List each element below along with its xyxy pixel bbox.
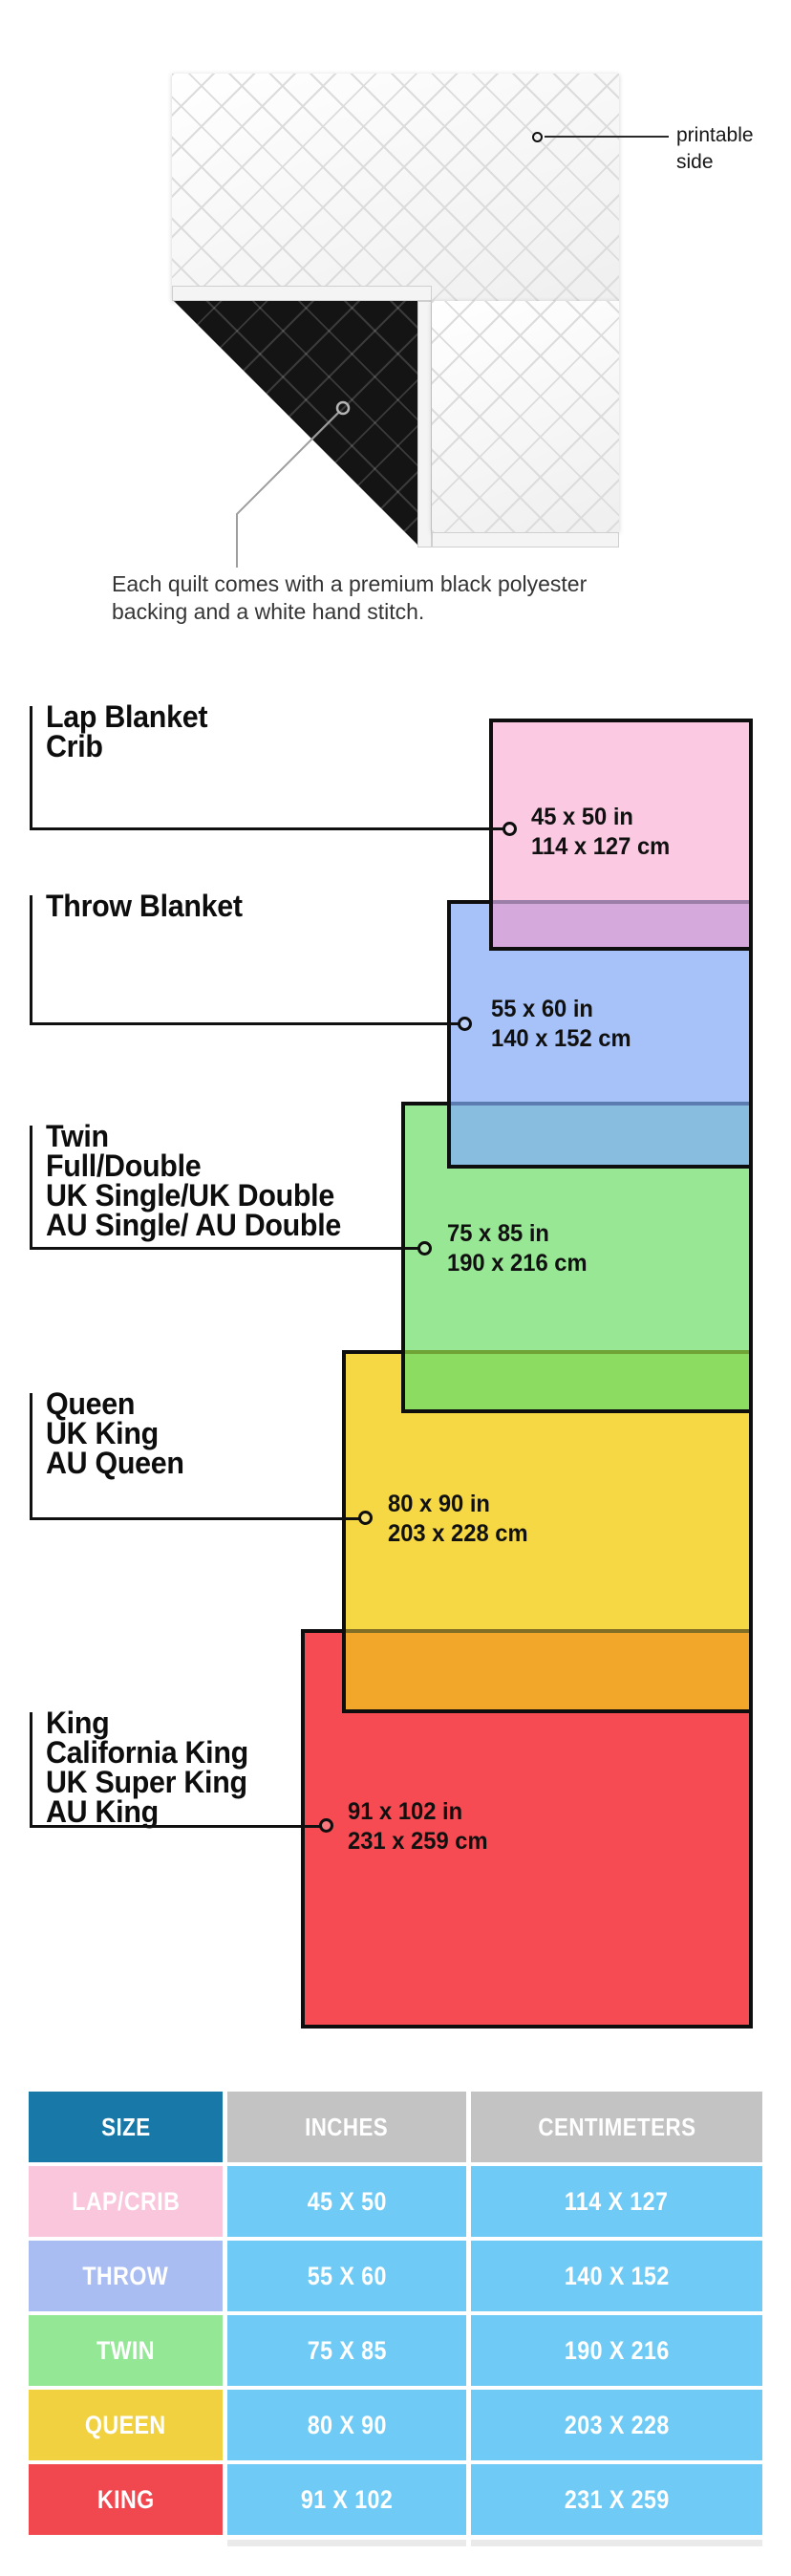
table-shadow-inches — [227, 2540, 466, 2546]
table-row-king-inches: 91 X 102 — [227, 2464, 466, 2535]
leader-hline-throw — [30, 1022, 459, 1025]
leader-vline-throw — [30, 895, 32, 1022]
size-table: SIZE INCHES CENTIMETERS LAP/CRIB 45 X 50… — [29, 2092, 762, 2535]
table-row-king-label: KING — [29, 2464, 223, 2535]
leader-dot-twin-icon — [417, 1241, 432, 1256]
leader-hline-king — [30, 1825, 320, 1828]
table-row-twin-label: TWIN — [29, 2315, 223, 2386]
table-row-throw-cm: 140 X 152 — [471, 2241, 762, 2311]
dimension-label-king: 91 x 102 in 231 x 259 cm — [348, 1797, 495, 1857]
overlap-band-twin-queen — [405, 1350, 749, 1409]
table-row-lap-inches: 45 X 50 — [227, 2166, 466, 2237]
table-row-twin-inches: 75 X 85 — [227, 2315, 466, 2386]
table-row-throw-inches: 55 X 60 — [227, 2241, 466, 2311]
group-label-queen: Queen UK King AU Queen — [46, 1389, 191, 1478]
backing-leader-line — [0, 0, 791, 669]
table-row-queen-cm: 203 X 228 — [471, 2390, 762, 2460]
leader-dot-throw-icon — [458, 1017, 472, 1031]
leader-dot-king-icon — [319, 1818, 333, 1833]
table-row-queen-label: QUEEN — [29, 2390, 223, 2460]
table-shadow-centimeters — [471, 2540, 762, 2546]
dimension-label-queen: 80 x 90 in 203 x 228 cm — [388, 1490, 535, 1549]
leader-vline-lap — [30, 706, 32, 830]
table-row-queen-inches: 80 X 90 — [227, 2390, 466, 2460]
table-row-twin-cm: 190 X 216 — [471, 2315, 762, 2386]
backing-dot-icon — [337, 402, 349, 414]
leader-vline-king — [30, 1712, 32, 1825]
overlap-band-queen-king — [346, 1629, 749, 1709]
leader-hline-queen — [30, 1517, 359, 1520]
dimension-label-throw: 55 x 60 in 140 x 152 cm — [491, 995, 638, 1054]
dimension-label-twin: 75 x 85 in 190 x 216 cm — [447, 1219, 594, 1278]
overlap-band-throw-twin — [451, 1102, 749, 1165]
table-header-inches: INCHES — [227, 2092, 466, 2162]
overlap-band-lap-throw — [493, 900, 749, 947]
dimension-label-lap: 45 x 50 in 114 x 127 cm — [531, 803, 677, 862]
leader-dot-queen-icon — [358, 1511, 373, 1525]
group-label-twin: Twin Full/Double UK Single/UK Double AU … — [46, 1122, 356, 1240]
table-row-king-cm: 231 X 259 — [471, 2464, 762, 2535]
group-label-lap-crib: Lap Blanket Crib — [46, 702, 216, 762]
leader-hline-twin — [30, 1247, 418, 1250]
table-row-lap-label: LAP/CRIB — [29, 2166, 223, 2237]
table-header-centimeters: CENTIMETERS — [471, 2092, 762, 2162]
table-row-throw-label: THROW — [29, 2241, 223, 2311]
group-label-throw: Throw Blanket — [46, 891, 253, 921]
table-header-size: SIZE — [29, 2092, 223, 2162]
table-row-lap-cm: 114 X 127 — [471, 2166, 762, 2237]
leader-dot-lap-icon — [502, 822, 517, 836]
infographic: printable side Each quilt comes with a p… — [0, 0, 791, 2576]
leader-vline-twin — [30, 1126, 32, 1247]
leader-hline-lap — [30, 827, 503, 830]
leader-vline-queen — [30, 1393, 32, 1517]
group-label-king: King California King UK Super King AU Ki… — [46, 1708, 259, 1827]
quilt-caption: Each quilt comes with a premium black po… — [112, 570, 587, 626]
